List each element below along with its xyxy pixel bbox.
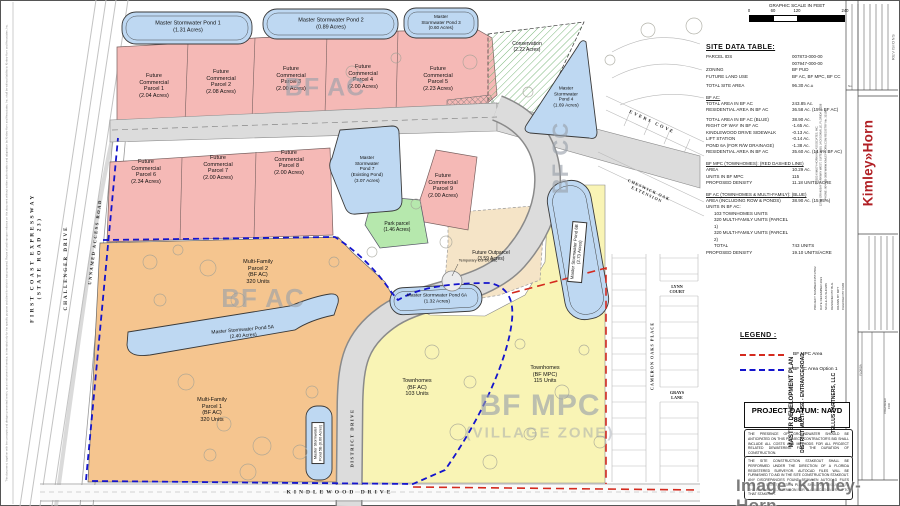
zone-label-bf-ac-top: BF AC [285,76,365,101]
label-future-commercial-parcel-8: Future Commercial Parcel 8 (2.00 Acres) [274,150,304,176]
scale-tick: 60 [771,8,776,13]
graphic-scale-ticks: 0 60 120 240 [749,8,845,14]
site-plan-sheet: Master Stormwater Pond 1 (1.31 Acres) Ma… [0,0,900,506]
blue-dashed-line-swatch [740,369,784,371]
label-townhomes-bf-mpc: Townhomes (BF MPC) 115 Units [530,365,559,385]
kimley-horn-logo: Kimley»Horn [861,120,876,207]
table-subheading: BF MPC (TOWNHOMES): (RED DASHED LINE) [706,160,856,167]
legend-item-label: BF MPC Area [793,352,822,357]
label-future-commercial-parcel-1: Future Commercial Parcel 1 (2.04 Acres) [139,73,169,99]
kimley-horn-address: © 2023 KIMLEY-HORN AND ASSOCIATES, INC. … [816,91,829,219]
label-pond-3: Master Stormwater Pond 3 (0.60 Acres) [421,14,460,31]
label-townhomes-bf-ac: Townhomes (BF AC) 103 Units [402,378,431,398]
label-temporary-cul-de-sac: Temporary Cul-De-Sac [459,259,498,264]
table-row: RESIDENTIAL AREA IN BF AC35.60 Ac. (14.6… [706,149,856,156]
image-credit-watermark: Image: Kimley-Horn [736,476,900,506]
scale-tick: 120 [794,8,801,13]
road-label-kindlewood-drive: KINDLEWOOD DRIVE [287,490,394,497]
label-pond-7: Master Stormwater Pond 7 (Existing Pond)… [351,155,383,183]
site-data-title: SITE DATA TABLE: [706,44,775,51]
table-subheading: BF AC (TOWNHOMES & MULTI-FAMILY): (BLUE) [706,191,856,198]
label-future-commercial-parcel-5: Future Commercial Parcel 5 (2.23 Acres) [423,66,453,92]
label-future-commercial-parcel-7: Future Commercial Parcel 7 (2.00 Acres) [203,155,233,181]
zone-label-village-zone: (VILLAGE ZONE) [466,426,615,441]
client-name: TELLUS PARTNERS, LLC [831,343,837,463]
road-label-challenger-drive: CHALLENGER DRIVE [64,226,70,311]
label-multi-family-parcel-1: Multi-Family Parcel 1 (BF AC) 320 Units [197,397,227,423]
road-label-lynn-court: LYNN COURT [670,284,685,294]
scale-bar [749,15,845,22]
scale-tick: 240 [842,8,849,13]
road-label-cameron-oaks-place: CAMERON OAKS PLACE [649,322,654,390]
cul-de-sac-shape [442,271,462,291]
table-row: RESIDENTIAL AREA IN BF AC36.58 Ac. (15% … [706,107,856,114]
subdivision-lots [598,38,704,482]
table-row: PARCEL IDS007873-000-00 007947-000-00 [706,54,856,67]
label-future-commercial-parcel-6: Future Commercial Parcel 6 (2.34 Acres) [131,159,161,185]
label-pond-2: Master Stormwater Pond 2 (0.89 Acres) [298,17,363,30]
road-label-first-coast-expressway: FIRST COAST EXPRESSWAY (STATE ROAD 23) [29,193,42,323]
table-subheading: BF AC: [706,94,856,101]
scale-tick: 0 [748,8,750,13]
project-title: DISTRICT MULTI-USE - ENTRANCE ROAD [800,328,806,478]
label-future-commercial-parcel-2: Future Commercial Parcel 2 (2.08 Acres) [206,69,236,95]
revisions-no-label: No. [848,84,853,88]
graphic-scale: GRAPHIC SCALE IN FEET 0 60 120 240 [749,3,845,22]
project-meta: PROJECT NUMBER 045717002 DATE DECEMBER 2… [813,222,847,310]
state-label: FLORIDA [859,364,862,375]
label-conservation: Conservation (2.22 Acres) [512,41,541,53]
label-pond-5b: Master Stormwater Pond 5B (0.60 Acres) [311,422,324,464]
sheet-title: MASTER DEVELOPMENT PLAN [789,327,795,477]
revisions-label: REVISIONS [891,34,896,60]
table-row: TOTAL SITE AREA96.30 Ac.± [706,83,856,90]
prepared-for-label: PREPARED FOR [883,398,891,413]
zone-label-bf-cc: BF CC [550,122,572,194]
red-dashed-line-swatch [740,354,784,356]
table-row: PROPOSED DENSITY11.18 UNITS/ACRE [706,180,856,187]
label-pond-4: Master Stormwater Pond 4 (1.69 Acres) [553,86,578,109]
legend-title: LEGEND : [740,332,777,339]
zone-label-bf-mpc: BF MPC [480,391,601,421]
road-label-district-drive: DISTRICT DRIVE [349,408,355,467]
label-pond-6a: Master Stormwater Pond 6A (1.32 Acres) [407,293,467,305]
label-pond-1: Master Stormwater Pond 1 (1.31 Acres) [155,20,220,33]
zone-label-bf-ac-mid: BF AC [221,285,304,311]
label-multi-family-parcel-2: Multi-Family Parcel 2 (BF AC) 320 Units [243,259,273,285]
label-park-parcel: Park parcel (1.46 Acres) [384,221,411,233]
road-label-grays-lane: GRAYS LANE [670,390,684,400]
disclaimer-text: This document, together with the concept… [5,13,8,493]
table-row: FUTURE LAND USEBF AC, BF MPC, BF CC [706,74,856,81]
label-future-commercial-parcel-9: Future Commercial Parcel 9 (2.00 Acres) [428,173,458,199]
